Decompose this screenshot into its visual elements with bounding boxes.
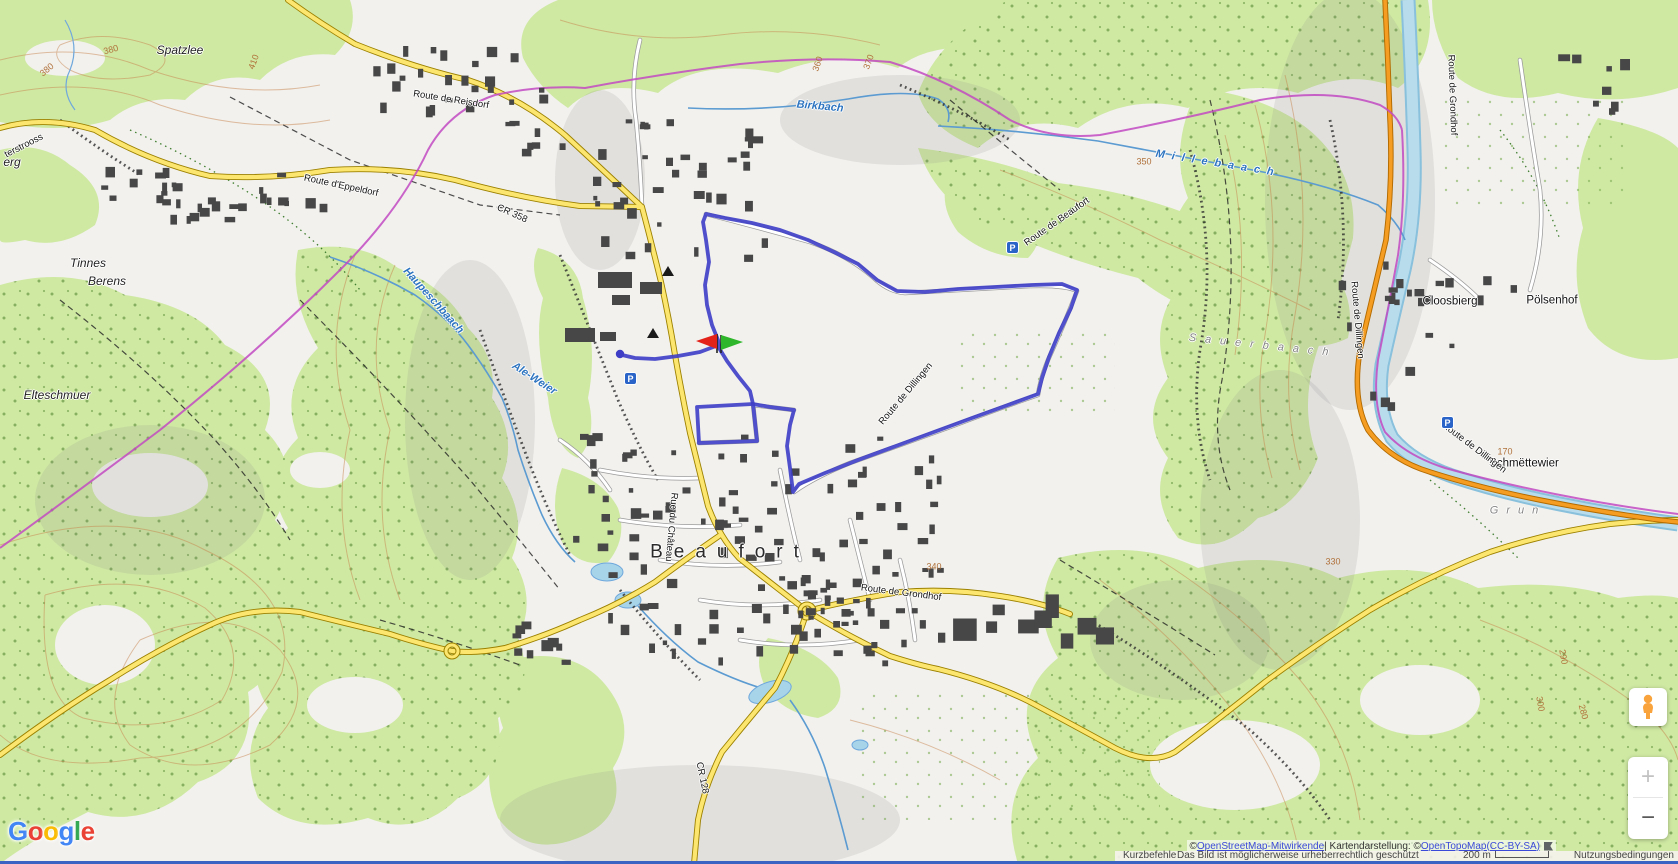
license-link[interactable]: (CC-BY-SA): [1486, 841, 1540, 852]
parking-icon: P: [624, 372, 637, 385]
parking-icon: P: [1441, 416, 1454, 429]
map-canvas[interactable]: SpatzleeTinnesBerensElteschmuerergCloosb…: [0, 0, 1678, 864]
pegman-icon: [1637, 694, 1659, 720]
scale-bar: [1495, 851, 1549, 858]
report-flag-icon[interactable]: [1544, 842, 1553, 851]
google-logo[interactable]: Google: [8, 816, 95, 847]
google-logo-letter: o: [43, 816, 58, 846]
google-logo-letter: l: [74, 816, 81, 846]
google-logo-letter: o: [28, 816, 43, 846]
google-logo-letter: e: [81, 816, 95, 846]
google-logo-letter: g: [59, 816, 74, 846]
parking-icon: P: [1006, 241, 1019, 254]
keyboard-shortcuts-link[interactable]: Kurzbefehle: [1123, 851, 1176, 861]
zoom-out-button[interactable]: −: [1628, 798, 1668, 838]
base-map: [0, 0, 1678, 864]
google-logo-letter: G: [8, 816, 28, 846]
zoom-control: + −: [1628, 757, 1668, 839]
bottom-bar: Kurzbefehle Das Bild ist möglicherweise …: [1115, 851, 1678, 861]
zoom-in-button[interactable]: +: [1628, 757, 1668, 797]
pegman-button[interactable]: [1629, 688, 1667, 726]
terms-link[interactable]: Nutzungsbedingungen: [1574, 851, 1674, 861]
copyright-notice: Das Bild ist möglicherweise urheberrecht…: [1177, 851, 1419, 861]
scale-text: 200 m: [1463, 851, 1491, 861]
